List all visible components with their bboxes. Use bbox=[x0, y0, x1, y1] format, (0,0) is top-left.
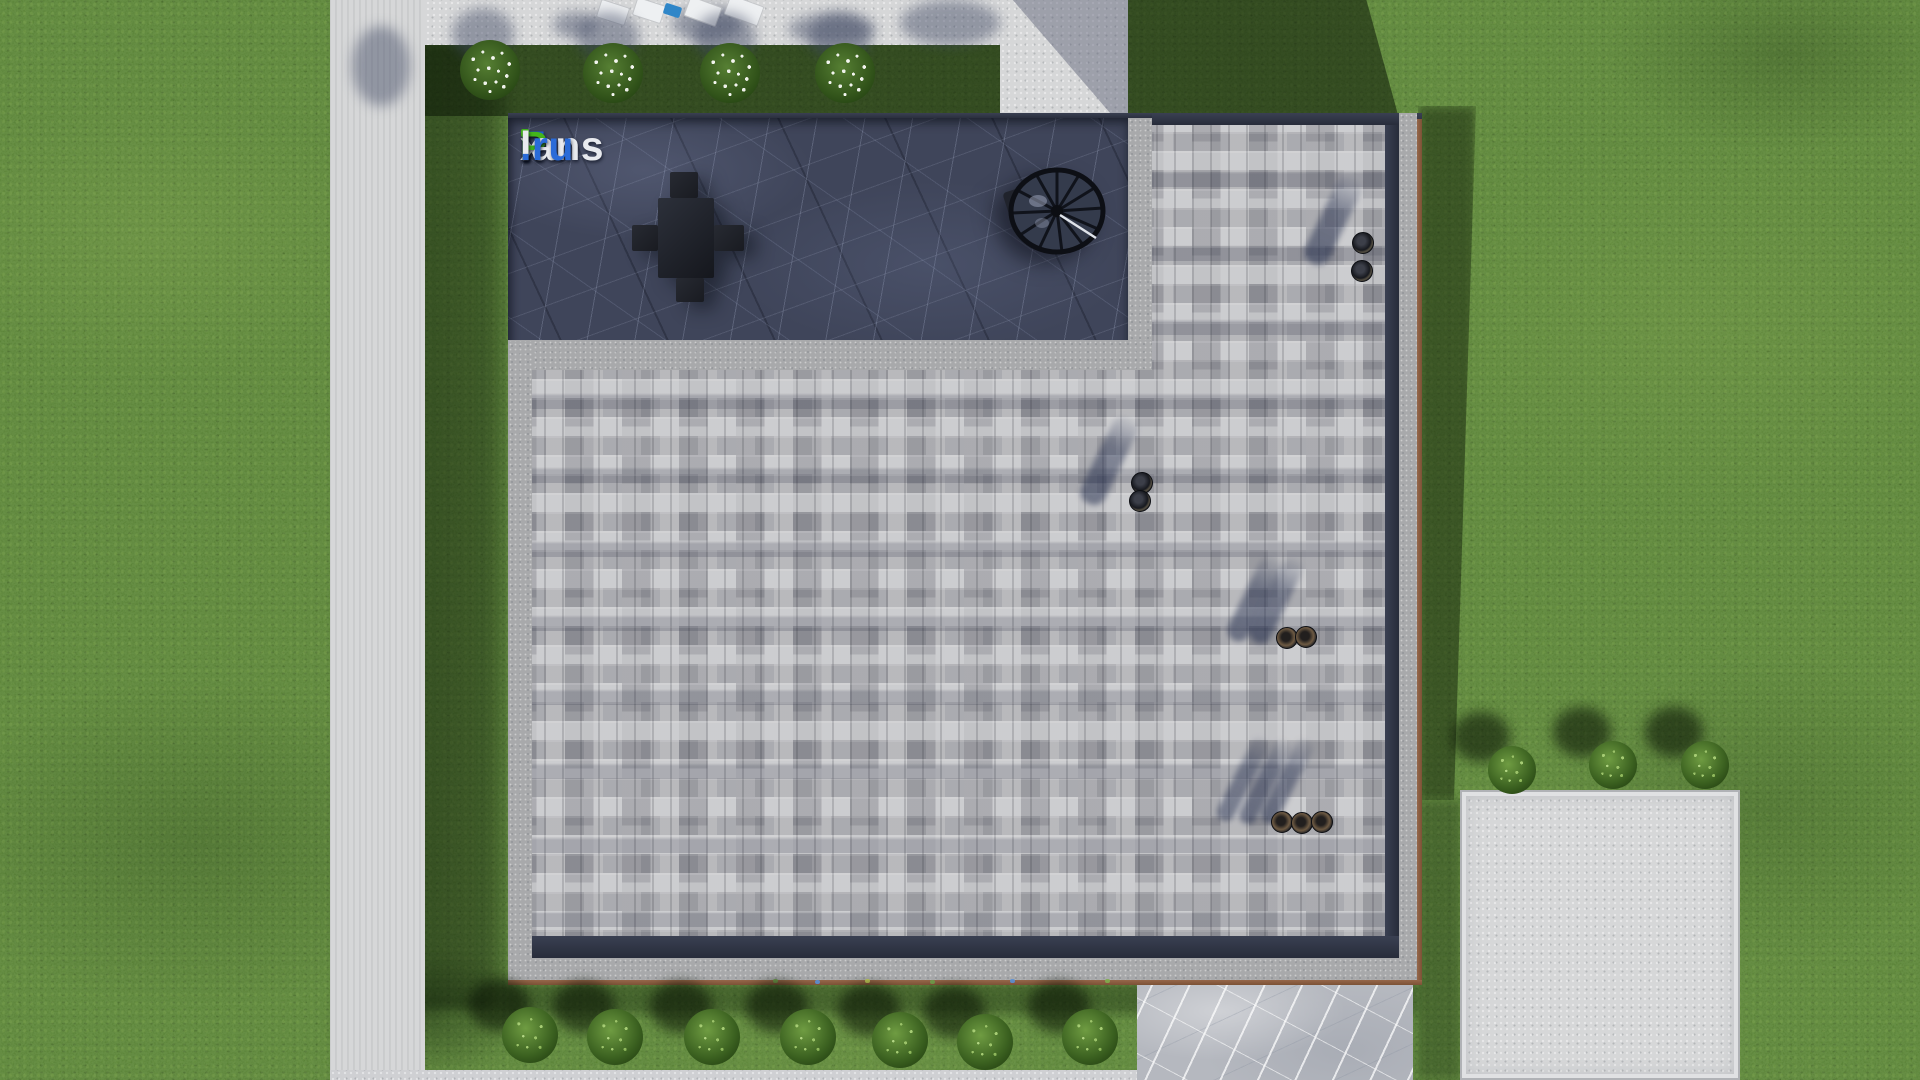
roof-vent-pipe bbox=[1351, 260, 1373, 282]
vent-shadow bbox=[1300, 172, 1365, 269]
flower-speck bbox=[930, 980, 935, 984]
bush-shadow-on-path bbox=[352, 26, 410, 106]
terrace-dining-set bbox=[618, 163, 768, 313]
terrace-chair bbox=[670, 172, 698, 198]
garden-path-left bbox=[330, 0, 425, 1080]
roof-trim-right bbox=[1417, 119, 1422, 980]
sun-lounger bbox=[632, 0, 666, 24]
aerial-site-render: FixPlans.ru bbox=[0, 0, 1920, 1080]
shadow-left-of-pad bbox=[1417, 800, 1461, 1080]
terrace-chair bbox=[676, 278, 704, 302]
roof-vent-pipe bbox=[1129, 490, 1151, 512]
logo-seg: .ru bbox=[520, 123, 574, 170]
green-bush bbox=[1589, 741, 1637, 789]
roof-parapet-right bbox=[1399, 113, 1417, 958]
terrace-divider-horizontal bbox=[508, 340, 1152, 370]
flowering-bush bbox=[700, 43, 760, 103]
roof-vent-pipe bbox=[1352, 232, 1374, 254]
flower-speck bbox=[1105, 979, 1110, 983]
green-bush bbox=[872, 1012, 928, 1068]
roof-edge-top-right bbox=[1152, 113, 1422, 125]
flower-speck bbox=[1010, 979, 1015, 983]
green-bush bbox=[1062, 1009, 1118, 1065]
roof-trim-bottom bbox=[508, 980, 1422, 985]
hanging-egg-chair bbox=[1000, 163, 1112, 259]
flower-speck bbox=[865, 979, 870, 983]
green-bush bbox=[587, 1009, 643, 1065]
concrete-pad-bottom-right bbox=[1460, 790, 1740, 1080]
roof-parapet-left bbox=[508, 342, 532, 980]
shadow-left-band bbox=[418, 42, 510, 1010]
stone-pad-bottom bbox=[1137, 982, 1413, 1080]
flowering-bush bbox=[460, 40, 520, 100]
flowering-bush bbox=[815, 43, 875, 103]
bush-shadow bbox=[900, 0, 1000, 46]
garden-path-bottom bbox=[330, 1070, 1137, 1080]
green-bush bbox=[502, 1007, 558, 1063]
roof-vent-pipe bbox=[1295, 626, 1317, 648]
pool-float-blue bbox=[663, 3, 683, 19]
green-bush bbox=[1488, 746, 1536, 794]
roof-vent-pipe bbox=[1271, 811, 1293, 833]
green-bush bbox=[957, 1014, 1013, 1070]
house-roof: FixPlans.ru bbox=[508, 113, 1422, 985]
green-bush bbox=[780, 1009, 836, 1065]
terrace-divider-vertical bbox=[1128, 118, 1152, 370]
roof-vent-pipe bbox=[1291, 812, 1313, 834]
green-bush bbox=[1681, 741, 1729, 789]
roof-parapet-bottom bbox=[508, 958, 1422, 980]
roof-vent-pipe bbox=[1311, 811, 1333, 833]
roof-inner-shadow-bottom bbox=[532, 936, 1399, 958]
terrace-table bbox=[658, 198, 714, 278]
terrace-chair bbox=[714, 225, 744, 251]
terrace-chair bbox=[632, 225, 658, 251]
roof-inner-shadow-right bbox=[1385, 125, 1399, 958]
flowering-bush bbox=[583, 43, 643, 103]
green-bush bbox=[684, 1009, 740, 1065]
flower-speck bbox=[815, 980, 820, 984]
